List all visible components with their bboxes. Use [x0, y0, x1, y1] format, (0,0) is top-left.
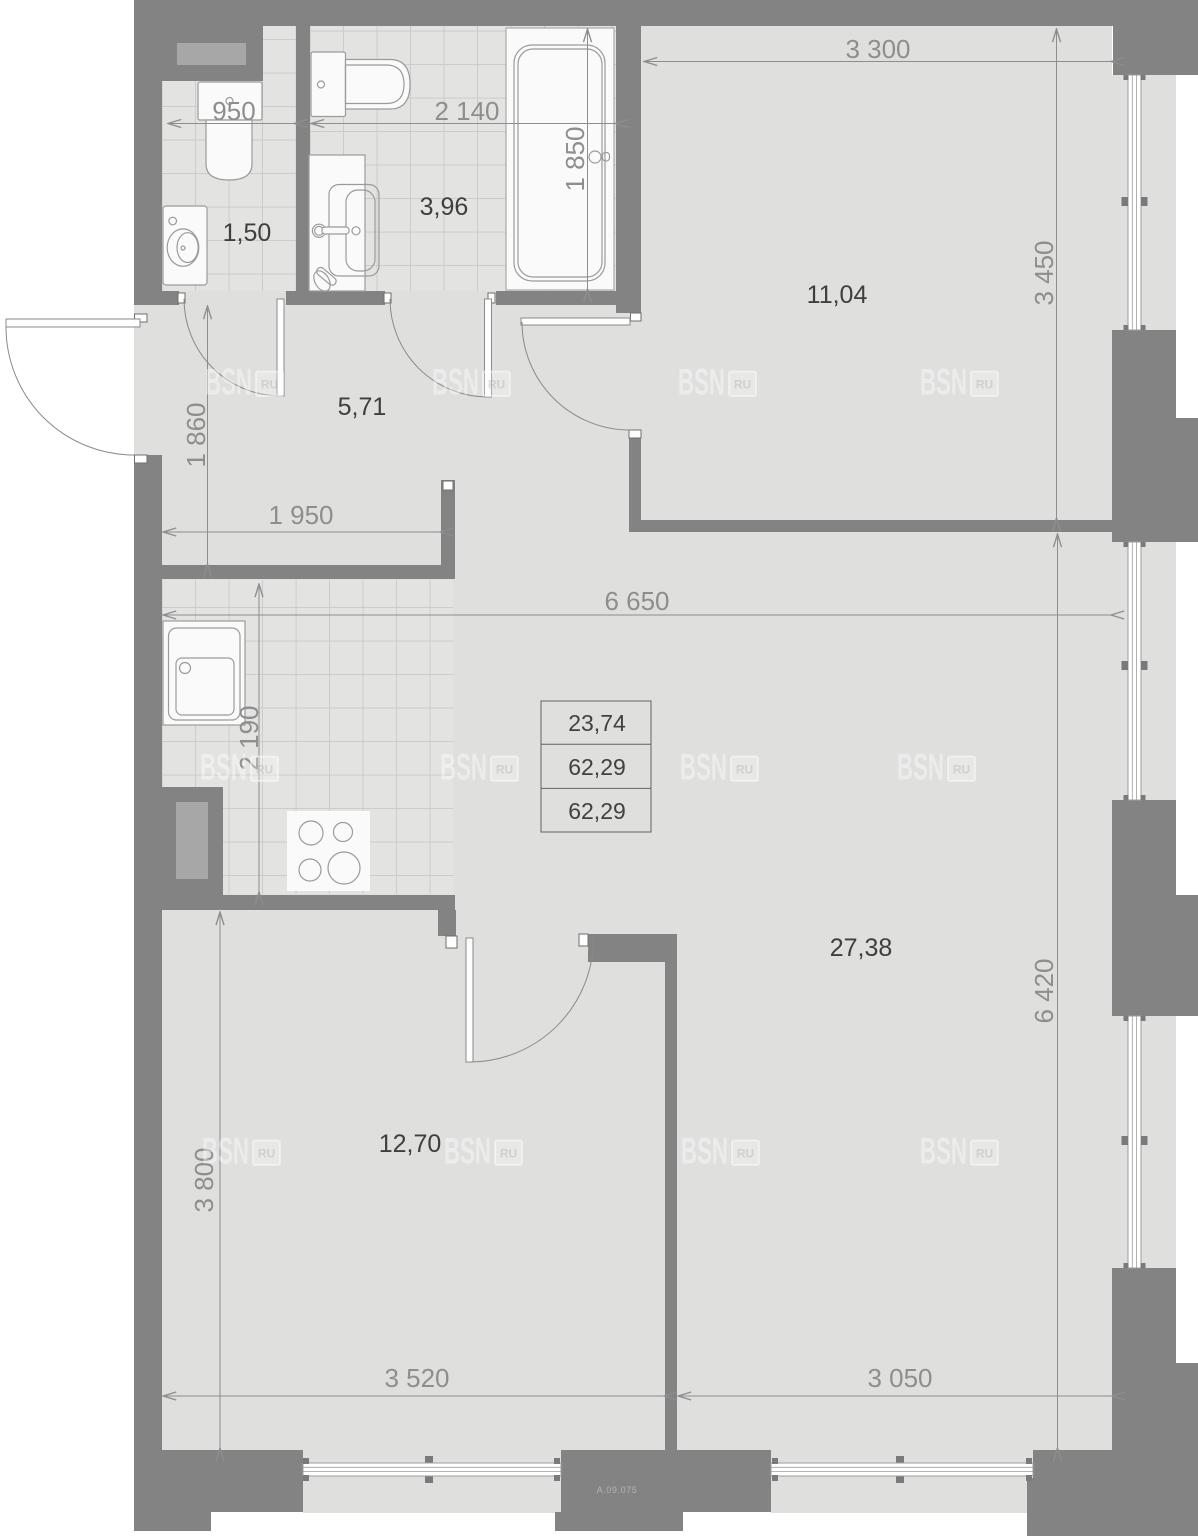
svg-text:1,50: 1,50	[223, 219, 272, 247]
svg-text:3 450: 3 450	[1029, 240, 1059, 305]
svg-text:5,71: 5,71	[338, 393, 387, 421]
svg-text:2 140: 2 140	[434, 96, 499, 126]
svg-text:62,29: 62,29	[568, 798, 626, 824]
svg-text:3,96: 3,96	[420, 193, 469, 221]
svg-text:1 850: 1 850	[560, 126, 590, 191]
svg-text:62,29: 62,29	[568, 754, 626, 780]
svg-text:6 650: 6 650	[604, 586, 669, 616]
svg-text:3 050: 3 050	[867, 1363, 932, 1393]
svg-text:A.09.075: A.09.075	[597, 1485, 638, 1495]
svg-text:27,38: 27,38	[830, 934, 893, 962]
svg-text:12,70: 12,70	[379, 1130, 442, 1158]
svg-text:950: 950	[212, 96, 255, 126]
svg-text:3 520: 3 520	[384, 1363, 449, 1393]
svg-text:23,74: 23,74	[568, 710, 626, 736]
svg-text:11,04: 11,04	[807, 281, 868, 309]
svg-text:1 860: 1 860	[181, 402, 211, 467]
svg-text:3 300: 3 300	[845, 34, 910, 64]
svg-text:6 420: 6 420	[1029, 958, 1059, 1023]
svg-text:1 950: 1 950	[268, 500, 333, 530]
